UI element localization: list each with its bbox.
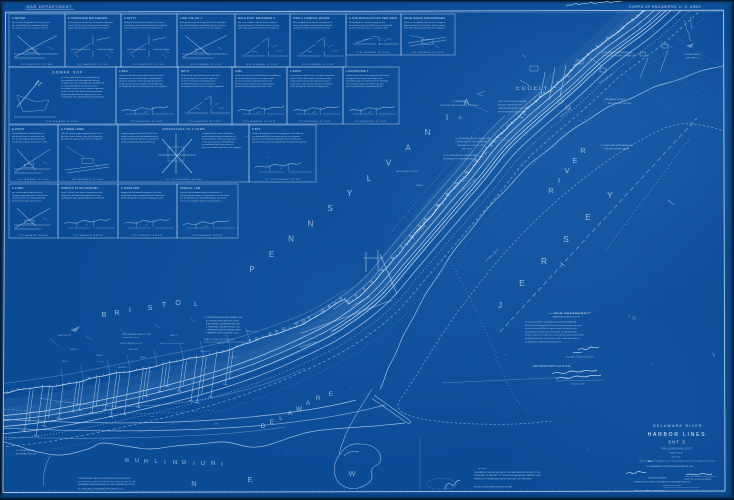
svg-text:D PIERHEAD AND BULKHEAD LINES: D PIERHEAD AND BULKHEAD LINES [206,329,241,332]
svg-text:congress approved march 3 of t: congress approved march 3 of the lines [12,194,48,197]
svg-text:T: T [192,461,196,467]
svg-text:E NORDLAND BULKHEADS: E NORDLAND BULKHEADS [68,16,107,20]
svg-text:BRISTOL WORSTED MILLS: BRISTOL WORSTED MILLS [160,343,185,345]
svg-text:of approach to the municipal p: of approach to the municipal pier and bu… [61,82,105,85]
svg-text:U S ENGINEER OFFICE PHILA P: U S ENGINEER OFFICE PHILA PA JUNE 30 194… [647,465,695,468]
svg-text:HARBOR LINES: HARBOR LINES [648,432,707,438]
svg-text:THE DELAWARE HOUSE: THE DELAWARE HOUSE [120,342,143,345]
svg-text:COAL PIER: COAL PIER [128,348,139,351]
svg-text:and harbors and extended along: and harbors and extended along the water… [124,24,168,27]
svg-text:were duly adopted by the board: were duly adopted by the board of engine… [404,27,445,30]
svg-text:PREVIOUSLY ESTABLISHED WITHIN: PREVIOUSLY ESTABLISHED WITHIN THE LIMITS… [474,477,533,480]
svg-text:600 0 600: 600 0 600 [672,457,682,459]
svg-text:the board of engineers for riv: the board of engineers for rivers [12,199,41,202]
svg-text:O: O [175,298,181,307]
svg-text:DELAWARE AREA: DELAWARE AREA [18,234,48,237]
svg-text:Rear Admiral Chief of Enginee: Rear Admiral Chief of Engineers [566,356,595,359]
svg-text:B BULKHEAD LINE APPROVED 189: B BULKHEAD LINE APPROVED 1897 [206,323,241,326]
svg-text:PHILADELPHIA DIST: PHILADELPHIA DIST [661,448,693,451]
svg-text:rivers and harbors and extende: rivers and harbors and extended along th… [293,24,333,27]
svg-text:a: a [302,107,303,109]
svg-text:V: V [386,159,392,168]
svg-text:D: D [261,423,266,430]
svg-text:OFFICE OF THE CHIEF OF ENGINEE: OFFICE OF THE CHIEF OF ENGINEERS [547,313,585,315]
svg-text:established by the secretary o: established by the secretary of war in [181,82,216,85]
svg-text:SUBMITTED BY DISTRICT ENGINEER: SUBMITTED BY DISTRICT ENGINEER U S ENGIN… [634,481,692,483]
svg-text:harbors and extended along the: harbors and extended along the waterfron… [180,191,222,194]
svg-text:adopted by the board of engine: adopted by the board of engineers for ri… [61,194,101,197]
svg-text:of war in accordance with the: of war in accordance with the act of con… [180,199,222,202]
svg-text:a: a [247,107,248,109]
svg-text:a: a [134,220,135,222]
svg-text:channel of approach to the mun: channel of approach to the municipal pie… [252,132,304,135]
svg-text:duly adopted by the board of e: duly adopted by the board of engineers f… [293,21,332,24]
svg-text:N: N [425,128,431,137]
svg-text:A LICENSED PIER AND SLIP LINE: A LICENSED PIER AND SLIP LINES [206,320,240,323]
svg-text:as established by the secretar: as established by the secretary of war i… [252,135,301,138]
svg-text:waterfront of the borough the: waterfront of the borough the channel of [293,27,330,30]
svg-text:N: N [191,479,196,488]
svg-text:N: N [173,460,177,466]
svg-text:accordance with the act of con: accordance with the act of congress appr… [181,85,224,88]
svg-text:pier and bulkhead as establish: pier and bulkhead as established by the … [180,197,227,200]
svg-text:I: I [446,113,448,122]
svg-text:of the borough the channel of: of the borough the channel of approach [181,77,218,80]
svg-text:APPROVED BY THE SECRETARY OF W: APPROVED BY THE SECRETARY OF WAR [457,141,497,144]
svg-text:pier and bulkhead as establish: pier and bulkhead as established by the [346,85,383,88]
svg-text:adopted by the board of engine: adopted by the board of engineers for ri… [290,80,330,83]
svg-text:C PIERHEAD LINE APPROVED 191: C PIERHEAD LINE APPROVED 1912 [206,326,241,329]
svg-text:S: S [327,204,332,213]
svg-text:DELAWARE RIVER: DELAWARE RIVER [46,120,78,123]
svg-text:N: N [288,235,294,244]
svg-text:engineers for rivers and harbo: engineers for rivers and harbors and ext… [119,77,162,80]
svg-text:It is represented the establis: It is represented the established pierhe… [525,321,577,324]
svg-text:B: B [125,458,129,464]
svg-text:as established by the secretar: as established by the secretary of [202,143,233,146]
svg-text:the waterfront of the borough: the waterfront of the borough the channe… [61,79,100,82]
svg-text:L: L [194,299,198,308]
svg-text:A-Ba: A-Ba [235,69,242,73]
svg-text:WHARF: WHARF [96,354,104,357]
svg-text:PA RR: PA RR [62,360,68,363]
svg-text:DELAWARE RIVER: DELAWARE RIVER [246,63,278,66]
svg-text:NOTES: NOTES [478,468,486,470]
svg-text:WALNUT ST: WALNUT ST [246,330,258,333]
svg-text:SCALE 1:9600: SCALE 1:9600 [669,452,683,455]
svg-text:and extended along the waterfr: and extended along the waterfront of [202,135,236,138]
svg-text:and harbors and extended along: and harbors and extended along the water… [61,96,105,99]
svg-text:shown hereon were duly adopted: shown hereon were duly adopted by the bo… [252,140,307,143]
svg-text:R: R [580,146,586,155]
svg-text:DIVISION ENGINEER: DIVISION ENGINEER [648,478,667,480]
svg-text:adopted by the board of engine: adopted by the board of engineers for ri… [124,21,164,24]
svg-text:O: O [201,461,206,467]
svg-text:for rivers and harbors and ext: for rivers and harbors and extended alon… [61,76,100,79]
svg-text:S: S [148,303,153,312]
svg-text:THE ANCHORAGE BASIN: THE ANCHORAGE BASIN [604,148,629,151]
svg-text:Secretary of War: Secretary of War [571,383,586,386]
svg-text:THE PIERHEAD LINES OF A CONTIN: THE PIERHEAD LINES OF A CONTINUOUS EXTEN… [78,477,130,480]
svg-text:E: E [247,475,252,484]
svg-text:E: E [519,278,525,288]
svg-text:A JOB MODULATIONS PER CENT: A JOB MODULATIONS PER CENT [349,16,398,20]
svg-text:TURNING BASIN: TURNING BASIN [684,53,700,56]
svg-text:along the waterfront of the bo: along the waterfront of the borough the … [119,80,163,83]
svg-text:and harbors and extended along: and harbors and extended along the water… [290,82,334,85]
svg-text:B: B [102,310,107,319]
svg-text:AND PROVING GROUND: AND PROVING GROUND [608,102,632,105]
svg-text:pier and bulkhead as establish: pier and bulkhead as established by the … [180,24,227,27]
svg-text:accordance with the act of con: accordance with the act of congress appr… [61,87,104,90]
svg-text:DELAWARE AREA: DELAWARE AREA [73,234,103,237]
svg-text:S: S [563,234,569,244]
svg-text:prolonged except in conformanc: prolonged except in conformance with a c… [525,337,580,340]
svg-text:PIER: PIER [86,377,91,379]
svg-text:to the municipal pier and bulk: to the municipal pier and bulkhead as [181,80,215,83]
svg-text:to the municipal pier and bulk: to the municipal pier and bulkhead as es… [235,74,281,77]
svg-text:N: N [211,461,215,467]
svg-text:of engineers for rivers and ha: of engineers for rivers and harbors [202,132,234,135]
svg-text:4 BAC: 4 BAC [119,69,128,73]
svg-text:A JETTY: A JETTY [124,16,136,20]
svg-text:with the act of congress appro: with the act of congress approved march … [61,132,103,135]
svg-text:4 ROCK: 4 ROCK [290,69,301,73]
svg-text:LINE: LINE [150,416,155,418]
svg-text:J: J [498,300,502,310]
svg-text:harbors and extended along the: harbors and extended along the waterfron… [181,74,221,77]
svg-text:to the municipal pier and bulk: to the municipal pier and bulkhead [202,140,234,143]
svg-text:in accordance with the act of: in accordance with the act of congress a… [68,21,113,24]
svg-text:march 3 of the lines shown her: march 3 of the lines shown hereon were d… [290,77,332,80]
svg-text:a: a [267,164,268,166]
svg-text:pier and bulkhead as establish: pier and bulkhead as established by the [12,24,49,27]
svg-text:U S BULKHEAD LINE APPROVED: U S BULKHEAD LINE APPROVED [601,51,633,54]
svg-text:THE PIERHEAD LINE OF 1907: THE PIERHEAD LINE OF 1907 [122,333,152,336]
svg-text:a: a [193,221,194,223]
svg-text:E HARBOR LINES MODIFIED 194: E HARBOR LINES MODIFIED 1940 [206,332,239,335]
svg-text:ORDNANCE WORKS: ORDNANCE WORKS [604,98,626,101]
svg-text:WASHINGTON SEPT 27 1940: WASHINGTON SEPT 27 1940 [552,316,580,319]
svg-text:congress approved march 3 of t: congress approved march 3 of the lines [121,132,157,135]
svg-text:FILE NO H-1-12345: FILE NO H-1-12345 [663,485,682,487]
svg-text:I: I [129,305,131,314]
svg-text:DELAWARE RIVER: DELAWARE RIVER [357,51,389,54]
svg-text:RANGE: RANGE [416,184,424,187]
svg-text:with the act of congress appro: with the act of congress approved march … [252,138,302,141]
svg-text:march 3 of the lines shown her: march 3 of the lines shown hereon were d… [61,191,103,194]
svg-text:LINES APPROVED BY THE CHIEF: LINES APPROVED BY THE CHIEF [498,107,530,110]
svg-text:BULKHEAD LINE 1899: BULKHEAD LINE 1899 [16,453,38,456]
svg-text:POQUESSING CREEK EXTENDING THE: POQUESSING CREEK EXTENDING THE TRENTON L… [78,481,136,483]
svg-text:W: W [348,469,356,478]
svg-text:war in accordance with the act: war in accordance with the act of [12,191,43,194]
svg-text:shown hereon were duly adopted: shown hereon were duly adopted by the [121,135,159,138]
svg-text:SAMSON PLUS CHANNEL: SAMSON PLUS CHANNEL [61,186,99,190]
svg-text:adopted by the board of engine: adopted by the board of engineers for ri… [68,27,108,30]
svg-text:DELAWARE RIVER: DELAWARE RIVER [72,178,104,181]
svg-text:A: A [306,400,311,407]
svg-text:DOCK ST: DOCK ST [186,359,195,361]
svg-text:WAR DEPARTMENT: WAR DEPARTMENT [26,4,72,9]
svg-text:adopted by the board of engine: adopted by the board of engineers for ri… [61,93,101,96]
svg-text:d: d [214,102,215,104]
svg-text:A: A [405,143,411,152]
svg-text:the lines shown hereon were du: the lines shown hereon were duly adopted [235,82,275,85]
svg-text:SHT 5: SHT 5 [668,440,686,445]
svg-text:the channel of approach to the: the channel of approach to the municipal [12,21,50,24]
svg-text:DELAWARE RIVER AS DEFINED BY T: DELAWARE RIVER AS DEFINED BY THE COMMISS… [78,483,135,486]
svg-text:DELAWARE AREA: DELAWARE AREA [132,234,162,237]
svg-text:d: d [99,41,100,43]
svg-text:board of engineers for rivers: board of engineers for rivers and harbor… [121,138,159,141]
svg-text:secretary of war in accordance: secretary of war in accordance with the [12,27,49,30]
svg-text:lines for the Delaware River: lines for the Delaware River Penn shown … [525,324,583,327]
svg-text:WASHINGTON JUNE 10 1940: WASHINGTON JUNE 10 1940 [457,144,485,147]
svg-text:DELAWARE AREA: DELAWARE AREA [192,234,222,237]
svg-text:L: L [367,174,372,183]
svg-text:war in accordance with the act: war in accordance with the act of congre… [238,21,277,24]
svg-text:DELAWARE RIVER: DELAWARE RIVER [355,120,387,123]
svg-text:E: E [269,250,274,259]
svg-text:shown hereon were duly adopted: shown hereon were duly adopted by [12,197,46,200]
svg-text:the municipal pier and bulkhea: the municipal pier and bulkhead as estab… [349,24,393,27]
svg-text:SECRETARY OF WAR SEPT 27 1940: SECRETARY OF WAR SEPT 27 1940 AND SUPERS… [474,474,542,477]
svg-text:A WATER: A WATER [12,16,25,20]
svg-text:DELAWARE RIVER: DELAWARE RIVER [77,63,109,66]
svg-text:FOR ADJOINING SHEETS SEE INDEX: FOR ADJOINING SHEETS SEE INDEX MAP [474,486,513,489]
svg-text:APPROACHES OF A TOWN: APPROACHES OF A TOWN [162,127,205,131]
svg-text:E-POINT: E-POINT [12,127,25,131]
svg-text:LINE THE NO 1: LINE THE NO 1 [180,16,203,20]
svg-text:WHARF LOT: WHARF LOT [200,350,212,353]
svg-text:U S PIERHEAD AND BULKHEAD LINE: U S PIERHEAD AND BULKHEAD LINE [455,137,491,140]
svg-text:adopted by the board of engine: adopted by the board of engineers for ri… [121,191,161,194]
svg-text:d: d [271,44,272,46]
svg-text:W: W [296,406,303,413]
svg-text:and bulkhead as established by: and bulkhead as established by the [12,132,45,135]
svg-text:T: T [162,300,167,309]
svg-text:DELAWARE RIVER: DELAWARE RIVER [21,63,53,66]
svg-text:NOTE LINES SHOWN HEREON ARE: NOTE LINES SHOWN HEREON ARE [443,154,477,157]
svg-text:the board of engineers for riv: the board of engineers for rivers and ha… [61,138,102,141]
svg-text:SEE SHT 4: SEE SHT 4 [462,149,473,151]
svg-text:embankment established heretof: embankment established heretofore Va [525,340,562,343]
svg-text:R: R [316,395,321,402]
svg-text:march 3 of the lines shown her: march 3 of the lines shown hereon were d… [68,24,110,27]
svg-text:IS SHOWN THUS: IS SHOWN THUS [122,337,139,339]
svg-text:U S ARSENAL: U S ARSENAL [452,100,467,103]
svg-text:the lines shown hereon were du: the lines shown hereon were duly adopted… [61,135,104,138]
svg-text:shown hereon were duly adopted: shown hereon were duly adopted by the bo… [346,74,390,77]
svg-text:LIGHTHOUSE T: LIGHTHOUSE T [346,69,369,73]
svg-text:and harbors and extended along: and harbors and extended along the water… [61,197,105,200]
svg-text:WAR DEPARTMENT Sept 30 1940: WAR DEPARTMENT Sept 30 1940 [533,365,571,368]
svg-text:by the secretary of war in acc: by the secretary of war in accordance wi… [235,77,275,80]
svg-text:N: N [308,219,314,228]
svg-text:BATH ST: BATH ST [170,334,179,337]
svg-text:the borough the channel of app: the borough the channel of approach to t… [180,194,230,197]
svg-text:PIER A LOADING WHARF: PIER A LOADING WHARF [293,16,330,20]
svg-text:posed Harbor I of the lines: posed Harbor I of the lines now further … [525,330,577,333]
svg-text:R: R [541,256,547,266]
svg-text:OTTER ST: OTTER ST [96,361,106,363]
svg-text:L: L [279,415,283,422]
svg-text:DELAWARE RIVER: DELAWARE RIVER [133,63,165,66]
svg-text:A: A [288,410,293,417]
svg-text:and extended along the waterfr: and extended along the waterfront of [121,140,155,143]
svg-text:d: d [382,38,383,40]
svg-text:A BTA: A BTA [252,127,261,131]
svg-text:and harbors and extended along: and harbors and extended along the water… [121,194,165,197]
svg-text:a: a [358,107,359,109]
svg-text:WAVE BASIN ANCHORAGES: WAVE BASIN ANCHORAGES [404,16,445,20]
svg-text:DELAWARE RIVER: DELAWARE RIVER [299,120,331,123]
svg-text:as established by the secretar: as established by the secretary of war i… [61,84,99,87]
svg-text:U S PIERHEAD AND: U S PIERHEAD AND [16,449,35,452]
svg-text:DELAWARE RIVER: DELAWARE RIVER [131,120,163,123]
svg-text:shown hereon were duly adopted: shown hereon were duly adopted by the bo… [119,74,164,77]
svg-text:E: E [270,419,275,426]
svg-text:the borough the channel of app: the borough the channel of approach to [349,21,386,24]
svg-text:as established by the secretar: as established by the secretary of war i… [119,85,168,88]
svg-text:march 3 of the lines shown her: march 3 of the lines shown hereon were d… [61,90,103,93]
svg-text:3 of the lines shown hereon we: 3 of the lines shown hereon were duly [12,140,48,143]
svg-text:by the board of engineers for: by the board of engineers for rivers and [235,85,272,88]
svg-text:DELAWARE RIVER: DELAWARE RIVER [653,424,703,428]
svg-text:V: V [564,166,569,175]
svg-text:of approach to the municipal p: of approach to the municipal pier and bu… [119,82,163,85]
svg-text:the channel of approach to the: the channel of approach to the municipal [346,82,384,85]
svg-text:BULK EAST BULKHEAD A: BULK EAST BULKHEAD A [238,16,275,20]
svg-text:BASIN: BASIN [230,356,236,359]
svg-text:SOMAR SOF: SOMAR SOF [52,71,83,75]
svg-text:OF ENGINEERS MARCH 1899: OF ENGINEERS MARCH 1899 [498,111,527,114]
svg-text:of the borough the channel of: of the borough the channel of approach t… [124,27,163,30]
svg-text:ANCHORAGE GROUND: ANCHORAGE GROUND [396,170,419,173]
svg-text:E: E [585,212,591,222]
svg-text:SCALE OF FEET 600 0 600: SCALE OF FEET 600 0 600 1200 [204,338,235,341]
svg-text:by the secretary of War as ag: by the secretary of War as against small… [525,327,578,330]
svg-text:a: a [74,220,75,222]
svg-text:DELAWARE RIVER: DELAWARE RIVER [302,63,334,66]
svg-text:R: R [548,186,554,195]
svg-text:A THREE LINES: A THREE LINES [61,127,84,131]
svg-text:DELAWARE RIVER: DELAWARE RIVER [17,178,49,181]
svg-text:JE DELAWARE AREA: JE DELAWARE AREA [165,178,201,181]
svg-text:LANDING: LANDING [118,366,127,369]
svg-text:R: R [144,459,149,465]
svg-text:of war in accordance with the: of war in accordance with the act of con… [180,27,222,30]
svg-text:of the borough the channel of: of the borough the channel of approach t… [290,85,329,88]
svg-text:REFERRED TO TRUE MERIDIAN: REFERRED TO TRUE MERIDIAN [443,158,474,161]
svg-text:DELAWARE RIVER: DELAWARE RIVER [412,51,444,54]
svg-text:were duly adopted by the board: were duly adopted by the board of engine… [238,27,279,30]
svg-text:the borough the channel of app: the borough the channel of approach [202,138,237,141]
svg-text:G: G [182,460,187,466]
svg-text:of war in accordance with the: of war in accordance with the act of con… [404,21,446,24]
svg-text:CANAL: CANAL [140,356,146,359]
svg-text:EDGELY STATION P R R: EDGELY STATION P R R [498,104,522,107]
svg-text:U S PIERHEAD AND BULKHEAD LINE: U S PIERHEAD AND BULKHEAD LINE [204,316,243,319]
svg-text:approved march 3 of the lines: approved march 3 of the lines shown here… [238,24,280,27]
svg-text:d: d [327,44,328,46]
svg-text:the act of congress approved m: the act of congress approved march [12,138,46,141]
svg-text:E: E [572,156,577,165]
svg-text:DELAWARE RIVER: DELAWARE RIVER [190,63,222,66]
svg-text:BY THE BOARD OF ENGINEER OFFIC: BY THE BOARD OF ENGINEER OFFICERS OF 190… [78,488,124,491]
svg-text:war in accordance with the act: war in accordance with the act of congre… [202,146,241,149]
svg-text:DELAWARE RIVER: DELAWARE RIVER [243,120,275,123]
svg-text:a: a [133,107,134,109]
svg-text:Y: Y [347,189,353,198]
svg-text:MILL ST: MILL ST [218,343,226,345]
svg-text:EDGELY: EDGELY [516,86,549,92]
svg-text:the act of congress approved m: the act of congress approved march 3 of [235,80,273,83]
svg-text:R: R [114,308,119,317]
svg-text:SEE SHEET 6: SEE SHEET 6 [686,58,700,60]
svg-text:of engineers for rivers and ha: of engineers for rivers and harbors and [346,77,383,80]
svg-text:LINE: LINE [214,424,219,426]
svg-text:P: P [249,265,254,274]
svg-text:approved march 3 of the lines: approved march 3 of the lines shown here… [404,24,446,27]
svg-text:in accordance with the act of: in accordance with the act of congress a… [290,74,335,77]
svg-text:extended along the waterfront: extended along the waterfront of the bor… [346,80,388,83]
svg-text:U: U [135,458,139,464]
svg-text:A ROWLAND: A ROWLAND [121,186,139,190]
svg-text:CORPS OF ENGINEERS. U. S. ARMY: CORPS OF ENGINEERS. U. S. ARMY [629,5,702,9]
svg-text:by the secretary of war in acc: by the secretary of war in accordance wi… [349,27,389,30]
svg-text:I: I [558,176,560,185]
svg-text:secretary of war in accordance: secretary of war in accordance with [12,135,45,138]
svg-text:MARKET: MARKET [70,348,79,351]
svg-text:of piers wharves or otherwise: of piers wharves or otherwise to extend … [525,334,584,337]
svg-text:BY THE SECRETARY OF WAR 1940: BY THE SECRETARY OF WAR 1940 [603,55,637,58]
svg-text:JE DELAWARE AREA: JE DELAWARE AREA [264,178,300,181]
svg-text:A LOMIL: A LOMIL [12,186,24,190]
svg-text:of the borough the channel of: of the borough the channel of approach t… [121,197,164,200]
svg-text:SPECIAL LAW: SPECIAL LAW [180,186,201,190]
svg-text:d: d [155,41,156,43]
svg-text:RADCLIFFE ST: RADCLIFFE ST [58,334,72,337]
svg-text:THE HARBOR LINES AS SHOWN ON T: THE HARBOR LINES AS SHOWN ON THIS MAP WE… [474,471,541,474]
svg-text:U S LINES AND APPROACHES OF: U S LINES AND APPROACHES OF [600,144,634,147]
svg-text:borough the channel of approac: borough the channel of approach to the m… [180,21,226,24]
svg-text:E: E [329,391,334,398]
svg-text:DELAWARE RIVER: DELAWARE RIVER [189,120,221,123]
svg-text:SITE OF PROPOSED WHARF: SITE OF PROPOSED WHARF [498,100,527,103]
svg-text:SPLIT: SPLIT [181,69,190,73]
svg-text:Y: Y [607,190,613,200]
